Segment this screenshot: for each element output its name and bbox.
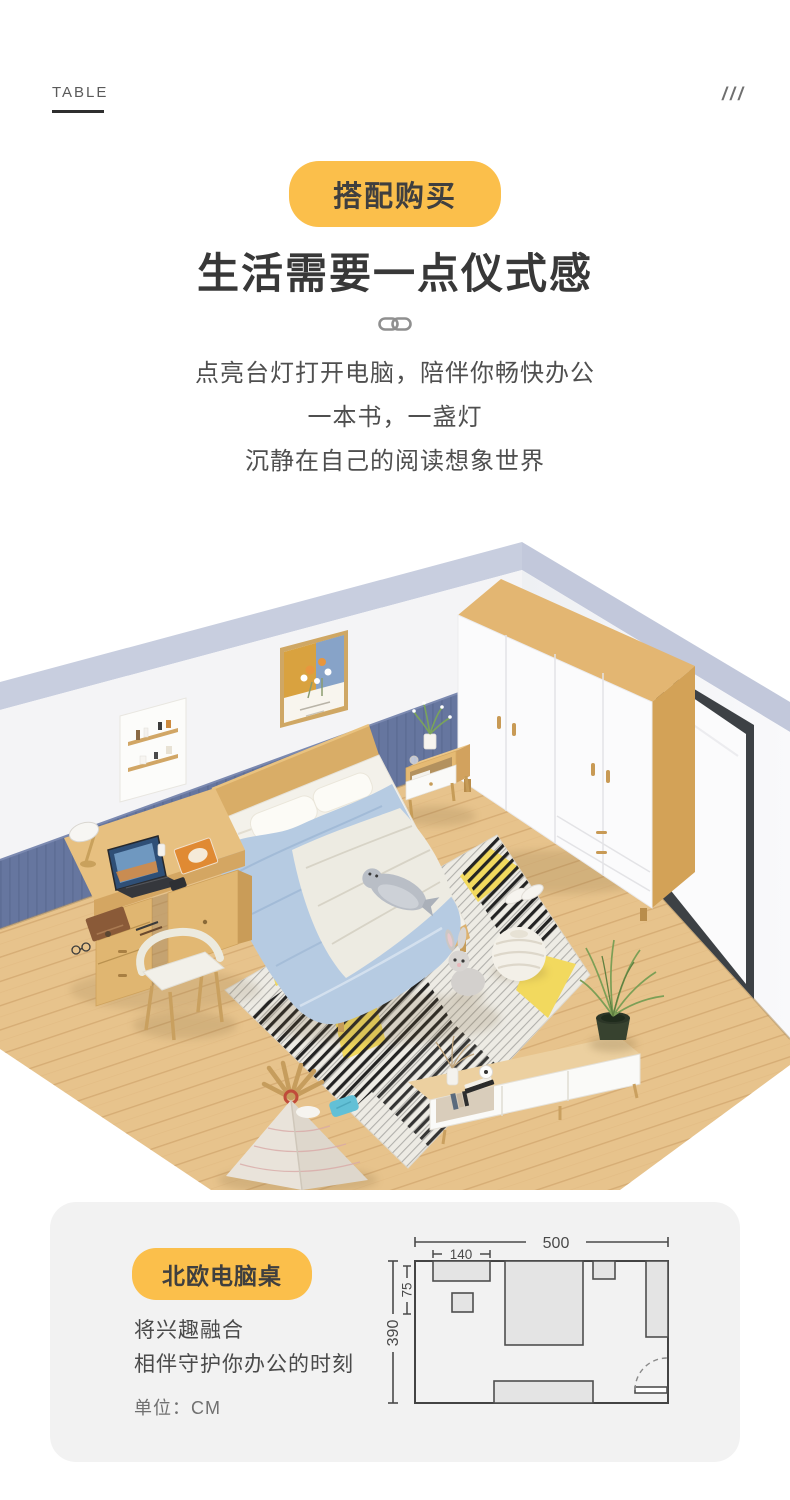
plan-dim-desk-width-label: 140 (450, 1247, 473, 1262)
product-desc-line: 将兴趣融合 (134, 1314, 354, 1348)
subtitle-line: 一本书，一盏灯 (0, 396, 790, 440)
plan-tv-stand (494, 1381, 593, 1403)
subtitle-block: 点亮台灯打开电脑，陪伴你畅快办公 一本书，一盏灯 沉静在自己的阅读想象世界 (0, 352, 790, 484)
bundle-buy-badge: 搭配购买 (289, 161, 501, 227)
floorplan-diagram: 500 140 390 75 (380, 1226, 700, 1427)
plan-dim-desk-depth-label: 75 (400, 1282, 415, 1297)
plan-dim-depth-label: 390 (385, 1320, 402, 1347)
section-eyebrow: TABLE (52, 84, 108, 101)
product-description: 将兴趣融合 相伴守护你办公的时刻 (134, 1314, 354, 1382)
product-desc-line: 相伴守护你办公的时刻 (134, 1348, 354, 1382)
room-render-image (0, 520, 790, 1190)
unit-label: 单位：CM (134, 1394, 221, 1420)
chain-link-icon (0, 314, 790, 339)
plan-nightstand (593, 1261, 615, 1279)
plan-door-leaf (635, 1387, 667, 1393)
plan-bed (505, 1261, 583, 1345)
plan-desk (433, 1261, 490, 1281)
product-name-badge: 北欧电脑桌 (132, 1248, 312, 1300)
subtitle-line: 点亮台灯打开电脑，陪伴你畅快办公 (0, 352, 790, 396)
plan-dim-width (415, 1237, 668, 1247)
plan-door-swing (635, 1358, 667, 1390)
plan-dim-width-label: 500 (543, 1235, 570, 1252)
eyebrow-underline (52, 110, 104, 113)
page-title: 生活需要一点仪式感 (0, 240, 790, 301)
product-info-card: 北欧电脑桌 将兴趣融合 相伴守护你办公的时刻 单位：CM (50, 1202, 740, 1462)
product-detail-page: TABLE /// 搭配购买 生活需要一点仪式感 点亮台灯打开电脑，陪伴你畅快办… (0, 0, 790, 1500)
plan-chair (452, 1293, 473, 1312)
plan-wardrobe (646, 1261, 668, 1337)
slashes-decor-icon: /// (722, 84, 746, 105)
subtitle-line: 沉静在自己的阅读想象世界 (0, 440, 790, 484)
